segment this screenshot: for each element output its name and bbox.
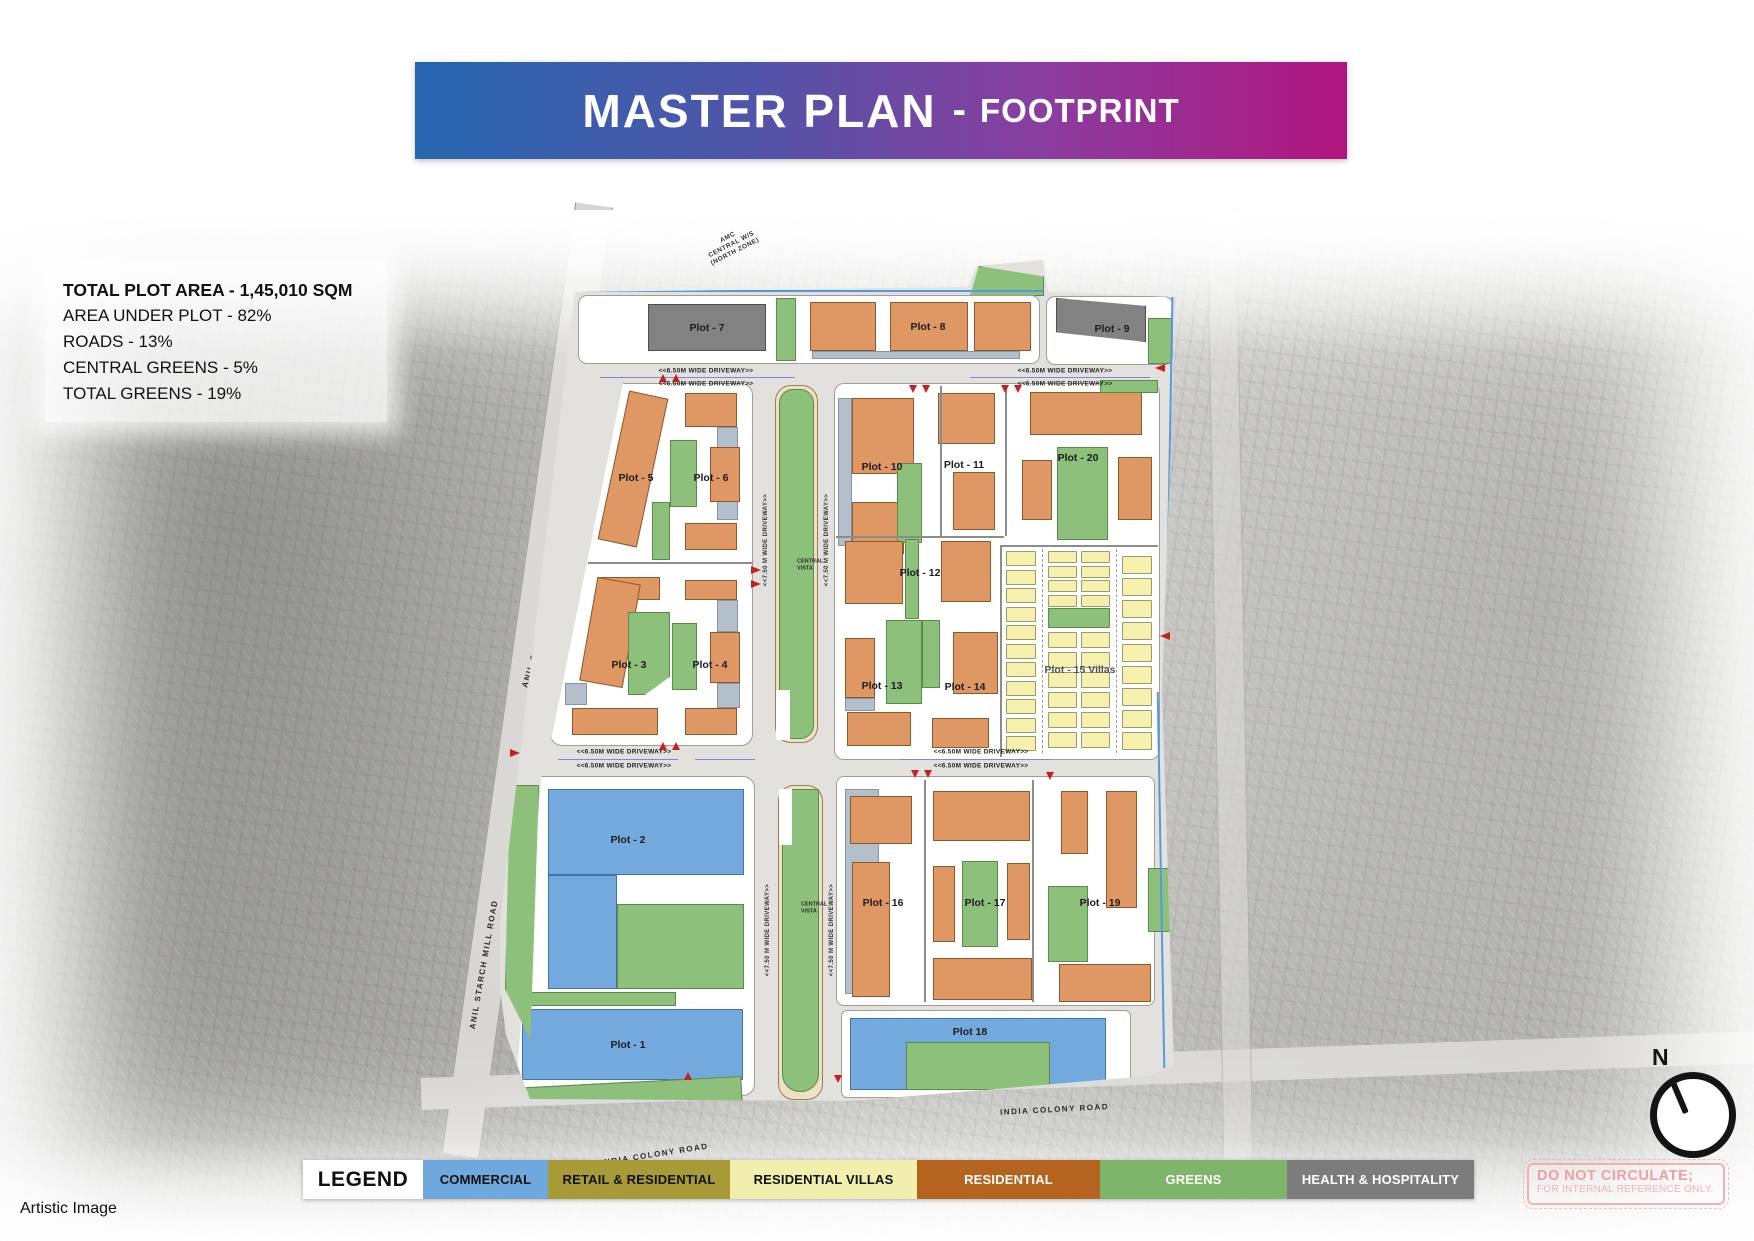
villa-unit bbox=[1122, 556, 1152, 574]
plot15-villas-area bbox=[1002, 547, 1158, 757]
plot-label-7: Plot - 7 bbox=[689, 322, 724, 334]
green-plot10-11 bbox=[897, 463, 922, 543]
direction-arrow-icon bbox=[911, 770, 919, 778]
villa-unit bbox=[1006, 607, 1036, 622]
plot-label-14: Plot - 14 bbox=[945, 681, 986, 693]
plot17-building-top bbox=[933, 791, 1030, 841]
direction-arrow-icon bbox=[1014, 385, 1022, 393]
villa-unit bbox=[1122, 666, 1152, 684]
green-plot18 bbox=[906, 1042, 1050, 1090]
central-vista-word1: CENTRAL bbox=[801, 902, 827, 909]
plot3-building-3 bbox=[572, 708, 658, 735]
divider-16-17 bbox=[924, 780, 926, 1002]
plot-label-13: Plot - 13 bbox=[862, 680, 903, 692]
villa-unit bbox=[1048, 595, 1077, 607]
villa-unit bbox=[1081, 551, 1110, 563]
driveway-label: <<6.50M WIDE DRIVEWAY>> bbox=[1018, 381, 1113, 388]
plot-label-8: Plot - 8 bbox=[910, 321, 945, 333]
central-vista-word1: CENTRAL bbox=[797, 559, 823, 566]
direction-arrow-icon bbox=[672, 374, 680, 382]
legend-bar: LEGEND COMMERCIALRETAIL & RESIDENTIALRES… bbox=[303, 1160, 1474, 1199]
villa-unit bbox=[1081, 692, 1110, 708]
stat-area-under-plot: AREA UNDER PLOT - 82% bbox=[63, 303, 369, 329]
plot4-court-1 bbox=[717, 600, 738, 632]
direction-arrow-icon bbox=[834, 1075, 842, 1083]
legend-item-residential-villas: RESIDENTIAL VILLAS bbox=[730, 1160, 917, 1199]
plot20-building-left bbox=[1022, 460, 1052, 520]
stamp-line2: FOR INTERNAL REFERENCE ONLY. bbox=[1537, 1184, 1715, 1195]
plot-label-9: Plot - 9 bbox=[1094, 323, 1129, 335]
driveway-label-vertical: <<7.50 M WIDE DRIVEWAY>> bbox=[829, 884, 835, 976]
plot13-court bbox=[845, 698, 875, 711]
plot20-building-right bbox=[1118, 457, 1152, 520]
stamp-line1: DO NOT CIRCULATE; bbox=[1537, 1168, 1715, 1184]
plot6-building-3 bbox=[685, 523, 737, 550]
driveway-line bbox=[558, 759, 678, 760]
villa-unit bbox=[1081, 566, 1110, 578]
villa-unit bbox=[1122, 600, 1152, 618]
driveway-label-vertical: <<7.50 M WIDE DRIVEWAY>> bbox=[765, 884, 771, 976]
legend-item-greens: GREENS bbox=[1100, 1160, 1287, 1199]
plot11-building-1 bbox=[938, 393, 995, 444]
green-plot13-14-2 bbox=[922, 620, 940, 688]
villa-unit bbox=[1048, 732, 1077, 748]
villa-unit bbox=[1081, 580, 1110, 592]
plot-label-4: Plot - 4 bbox=[692, 659, 727, 671]
legend-item-commercial: COMMERCIAL bbox=[423, 1160, 548, 1199]
plot14-building-2 bbox=[932, 718, 989, 748]
villa-unit bbox=[1006, 588, 1036, 603]
compass-icon bbox=[1650, 1072, 1736, 1158]
plot16-building-1 bbox=[850, 796, 912, 844]
plot-label-2: Plot - 2 bbox=[610, 834, 645, 846]
green-villas bbox=[1048, 608, 1110, 628]
direction-arrow-icon bbox=[751, 566, 761, 574]
plot-label-15: Plot - 15 Villas bbox=[1044, 664, 1115, 676]
villa-unit bbox=[1048, 580, 1077, 592]
plot19-building-1 bbox=[1061, 791, 1088, 854]
driveway-label: <<6.50M WIDE DRIVEWAY>> bbox=[1018, 368, 1113, 375]
divider-17-19 bbox=[1032, 780, 1034, 1002]
central-vista-word2: VISTA bbox=[797, 566, 813, 573]
direction-arrow-icon bbox=[751, 580, 761, 588]
plot19-building-2 bbox=[1106, 791, 1137, 908]
page-title-separator: - bbox=[953, 88, 966, 133]
villa-unit bbox=[1122, 710, 1152, 728]
plot12-building-1 bbox=[845, 541, 903, 604]
plot4-building-2 bbox=[710, 632, 740, 683]
driveway-line bbox=[600, 377, 795, 378]
plot-label-11: Plot - 11 bbox=[944, 459, 984, 471]
stat-total-greens: TOTAL GREENS - 19% bbox=[63, 381, 369, 407]
villa-unit bbox=[1081, 595, 1110, 607]
central-vista-word2: VISTA bbox=[801, 909, 817, 916]
plot-label-19: Plot - 19 bbox=[1080, 897, 1121, 909]
plot8-building-3 bbox=[974, 302, 1031, 351]
green-plot9-right bbox=[1148, 318, 1172, 364]
stat-roads: ROADS - 13% bbox=[63, 329, 369, 355]
villa-unit bbox=[1048, 692, 1077, 708]
plot8-building-1 bbox=[810, 302, 876, 351]
title-banner: MASTER PLAN - FOOTPRINT bbox=[415, 62, 1347, 159]
legend-item-retail-residential: RETAIL & RESIDENTIAL bbox=[548, 1160, 730, 1199]
page-title-sub: FOOTPRINT bbox=[980, 92, 1180, 130]
plot8-base-strip bbox=[812, 351, 1020, 359]
villa-unit bbox=[1122, 644, 1152, 662]
green-band-plot1 bbox=[515, 992, 676, 1006]
legend-title: LEGEND bbox=[303, 1160, 423, 1199]
plot3-court bbox=[565, 683, 587, 705]
plot20-building-row bbox=[1030, 392, 1142, 435]
plot-label-17: Plot - 17 bbox=[965, 897, 1006, 909]
plot16-building-2 bbox=[852, 862, 890, 997]
villa-unit bbox=[1122, 578, 1152, 596]
plot17-building-left bbox=[933, 866, 955, 942]
direction-arrow-icon bbox=[659, 742, 667, 750]
legend-item-health-hospitality: HEALTH & HOSPITALITY bbox=[1287, 1160, 1474, 1199]
divider-row-right bbox=[836, 536, 1004, 538]
villa-unit bbox=[1006, 681, 1036, 696]
villa-unit bbox=[1122, 622, 1152, 640]
divider-20-villas bbox=[1000, 545, 1158, 547]
plot2-building-2 bbox=[548, 875, 617, 989]
villas-lane-1 bbox=[1042, 549, 1043, 753]
villa-unit bbox=[1048, 712, 1077, 728]
villa-unit bbox=[1122, 732, 1152, 750]
direction-arrow-icon bbox=[924, 770, 932, 778]
direction-arrow-icon bbox=[1155, 364, 1165, 372]
vista-notch-upper bbox=[776, 690, 790, 740]
driveway-line bbox=[970, 377, 1150, 378]
green-plot12 bbox=[905, 539, 919, 619]
villa-unit bbox=[1081, 712, 1110, 728]
plot2-building-1 bbox=[548, 789, 744, 875]
villa-unit bbox=[1006, 625, 1036, 640]
direction-arrow-icon bbox=[1046, 772, 1054, 780]
direction-arrow-icon bbox=[659, 374, 667, 382]
villa-unit bbox=[1006, 551, 1036, 566]
artistic-image-note: Artistic Image bbox=[20, 1200, 117, 1218]
villa-unit bbox=[1081, 632, 1110, 648]
do-not-circulate-stamp: DO NOT CIRCULATE; FOR INTERNAL REFERENCE… bbox=[1527, 1163, 1725, 1205]
driveway-line bbox=[695, 759, 755, 760]
compass-north-label: N bbox=[1652, 1044, 1669, 1071]
divider-14-villas bbox=[1000, 545, 1002, 757]
plot19-building-3 bbox=[1059, 964, 1151, 1002]
direction-arrow-icon bbox=[510, 749, 520, 757]
green-strip-top bbox=[776, 298, 796, 361]
villas-lane-2 bbox=[1116, 549, 1117, 753]
plot12-building-2 bbox=[941, 541, 991, 602]
right-side-road bbox=[1207, 210, 1254, 1170]
driveway-label: <<6.50M WIDE DRIVEWAY>> bbox=[934, 749, 1029, 756]
plot-label-3: Plot - 3 bbox=[611, 659, 646, 671]
direction-arrow-icon bbox=[684, 1072, 692, 1080]
plot13-building-2 bbox=[847, 712, 911, 746]
page-title-main: MASTER PLAN bbox=[582, 84, 936, 138]
plot-label-16: Plot - 16 bbox=[863, 897, 904, 909]
villa-unit bbox=[1122, 688, 1152, 706]
plot-label-12: Plot - 12 bbox=[900, 567, 941, 579]
plot-label-10: Plot - 10 bbox=[862, 461, 903, 473]
compass-needle bbox=[1670, 1081, 1688, 1114]
villa-unit bbox=[1048, 632, 1077, 648]
plot4-building-3 bbox=[685, 708, 737, 735]
green-plot4 bbox=[672, 623, 697, 690]
plot-label-6: Plot - 6 bbox=[693, 472, 728, 484]
plot-area-stats-box: TOTAL PLOT AREA - 1,45,010 SQM AREA UNDE… bbox=[45, 262, 387, 422]
plot6-building-1 bbox=[685, 393, 737, 427]
divider-mid-left bbox=[588, 562, 753, 564]
direction-arrow-icon bbox=[922, 385, 930, 393]
villa-unit bbox=[1006, 570, 1036, 585]
plot-label-5: Plot - 5 bbox=[618, 472, 653, 484]
driveway-line bbox=[900, 759, 1050, 760]
divider-11-20 bbox=[1005, 386, 1007, 536]
plot17-building-right bbox=[1007, 863, 1030, 940]
divider-10-11 bbox=[940, 386, 942, 536]
villa-unit bbox=[1006, 662, 1036, 677]
green-plot5-lower bbox=[652, 502, 670, 560]
plot17-building-bottom bbox=[933, 958, 1032, 1000]
driveway-label-vertical: <<7.50 M WIDE DRIVEWAY>> bbox=[824, 494, 830, 586]
plot4-court-2 bbox=[717, 683, 740, 708]
direction-arrow-icon bbox=[1160, 632, 1170, 640]
stat-central-greens: CENTRAL GREENS - 5% bbox=[63, 355, 369, 381]
plot4-building-1 bbox=[685, 580, 737, 600]
plot11-building-2 bbox=[953, 472, 995, 530]
villa-unit bbox=[1006, 644, 1036, 659]
villa-unit bbox=[1006, 699, 1036, 714]
plot-label-1: Plot - 1 bbox=[610, 1039, 645, 1051]
plot-label-20: Plot - 20 bbox=[1058, 452, 1099, 464]
villa-unit bbox=[1081, 732, 1110, 748]
plot-label-18: Plot 18 bbox=[953, 1026, 987, 1038]
direction-arrow-icon bbox=[909, 385, 917, 393]
driveway-label: <<6.50M WIDE DRIVEWAY>> bbox=[577, 763, 672, 770]
vista-notch-lower bbox=[779, 789, 792, 845]
driveway-label: <<6.50M WIDE DRIVEWAY>> bbox=[934, 763, 1029, 770]
plot10-court bbox=[838, 398, 852, 546]
green-plot2 bbox=[617, 904, 744, 989]
villa-unit bbox=[1048, 566, 1077, 578]
stat-total-plot-area: TOTAL PLOT AREA - 1,45,010 SQM bbox=[63, 277, 369, 303]
driveway-label-vertical: <<7.50 M WIDE DRIVEWAY>> bbox=[763, 494, 769, 586]
driveway-label: <<6.50M WIDE DRIVEWAY>> bbox=[577, 749, 672, 756]
legend-item-residential: RESIDENTIAL bbox=[917, 1160, 1100, 1199]
master-plan-site: Plot - 7 Plot - 8 Plot - 9 <<6.50M WIDE … bbox=[500, 240, 1190, 1140]
villa-unit bbox=[1048, 551, 1077, 563]
villa-unit bbox=[1006, 718, 1036, 733]
direction-arrow-icon bbox=[672, 742, 680, 750]
direction-arrow-icon bbox=[1001, 385, 1009, 393]
